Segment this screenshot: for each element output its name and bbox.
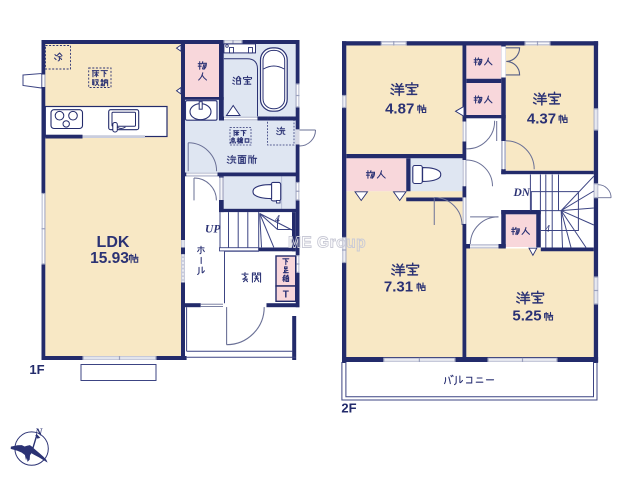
svg-text:UP: UP [205,224,221,236]
svg-text:7.31: 7.31 [384,279,413,296]
svg-text:DN: DN [512,187,530,199]
svg-text:5.25: 5.25 [512,308,541,325]
svg-text:ME Group: ME Group [288,235,366,252]
svg-text:2F: 2F [341,401,356,416]
svg-text:4: 4 [545,224,550,235]
svg-text:N: N [34,428,43,439]
svg-text:4: 4 [275,214,280,225]
svg-text:4.37: 4.37 [527,110,556,127]
svg-text:T: T [283,290,289,301]
svg-text:15.93: 15.93 [90,250,129,267]
svg-text:1F: 1F [29,362,44,377]
svg-text:LDK: LDK [97,234,130,251]
svg-text:4.87: 4.87 [385,100,414,117]
